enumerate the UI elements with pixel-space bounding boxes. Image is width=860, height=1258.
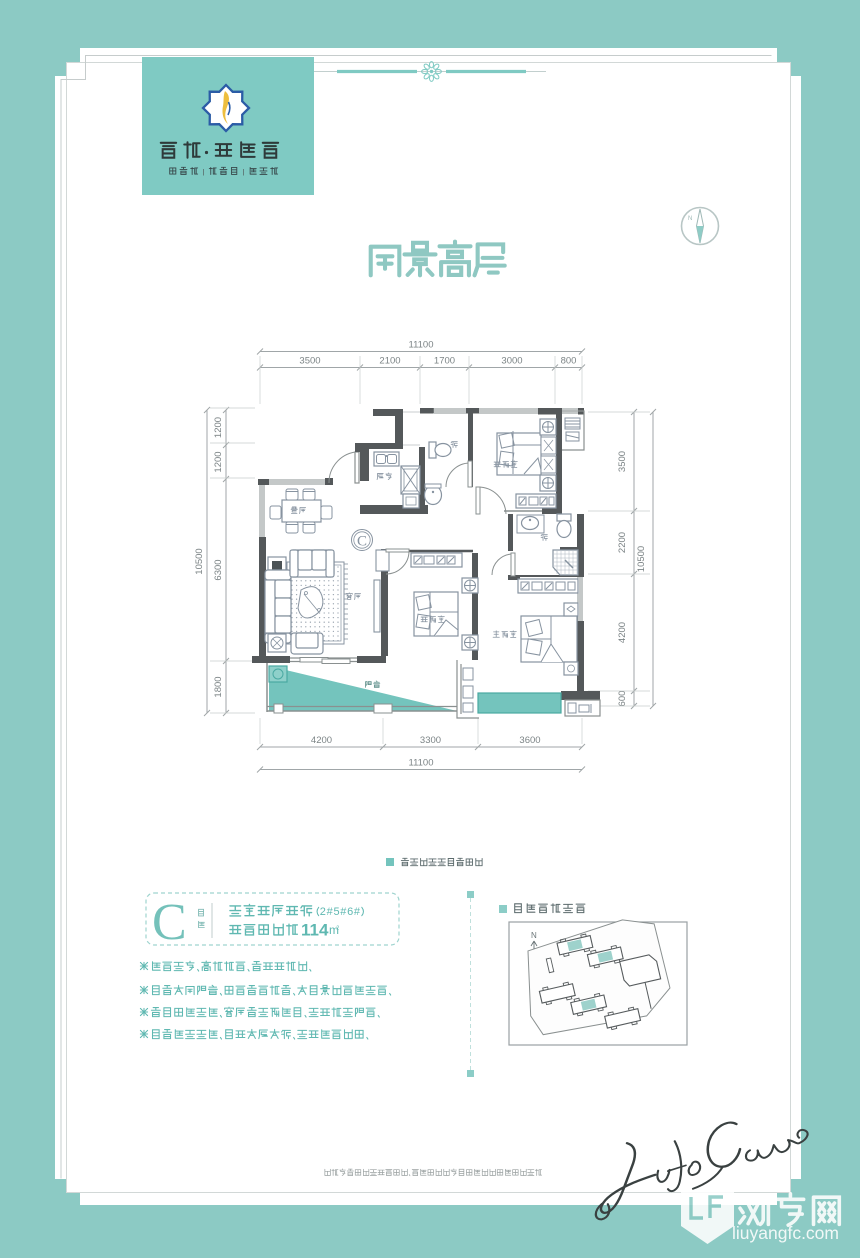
svg-text:1700: 1700 (434, 356, 455, 367)
svg-text:4200: 4200 (617, 622, 628, 643)
svg-text:1200: 1200 (213, 451, 224, 472)
svg-text:liuyangfc.com: liuyangfc.com (732, 1223, 839, 1243)
svg-text:11100: 11100 (408, 340, 433, 351)
svg-text:3000: 3000 (501, 356, 522, 367)
svg-text:2100: 2100 (379, 356, 400, 367)
svg-text:2200: 2200 (617, 532, 628, 553)
svg-text:6300: 6300 (213, 559, 224, 580)
svg-text:2#5#6#: 2#5#6# (320, 906, 361, 918)
svg-text:3300: 3300 (420, 735, 441, 746)
svg-text:3500: 3500 (617, 451, 628, 472)
svg-text:m: m (329, 923, 339, 937)
svg-text:C: C (152, 894, 187, 951)
svg-text:10500: 10500 (636, 546, 647, 572)
svg-text:10500: 10500 (194, 548, 205, 574)
svg-text:C: C (357, 534, 367, 550)
svg-text:114: 114 (301, 921, 329, 940)
svg-text:N: N (531, 931, 537, 940)
svg-text:600: 600 (617, 691, 628, 707)
svg-text:4200: 4200 (311, 735, 332, 746)
svg-text:N: N (688, 216, 692, 222)
svg-text:3600: 3600 (519, 735, 540, 746)
svg-text:3500: 3500 (299, 356, 320, 367)
svg-text:800: 800 (561, 356, 577, 367)
svg-text:11100: 11100 (408, 758, 433, 769)
svg-text:1800: 1800 (213, 676, 224, 697)
svg-text:1200: 1200 (213, 417, 224, 438)
